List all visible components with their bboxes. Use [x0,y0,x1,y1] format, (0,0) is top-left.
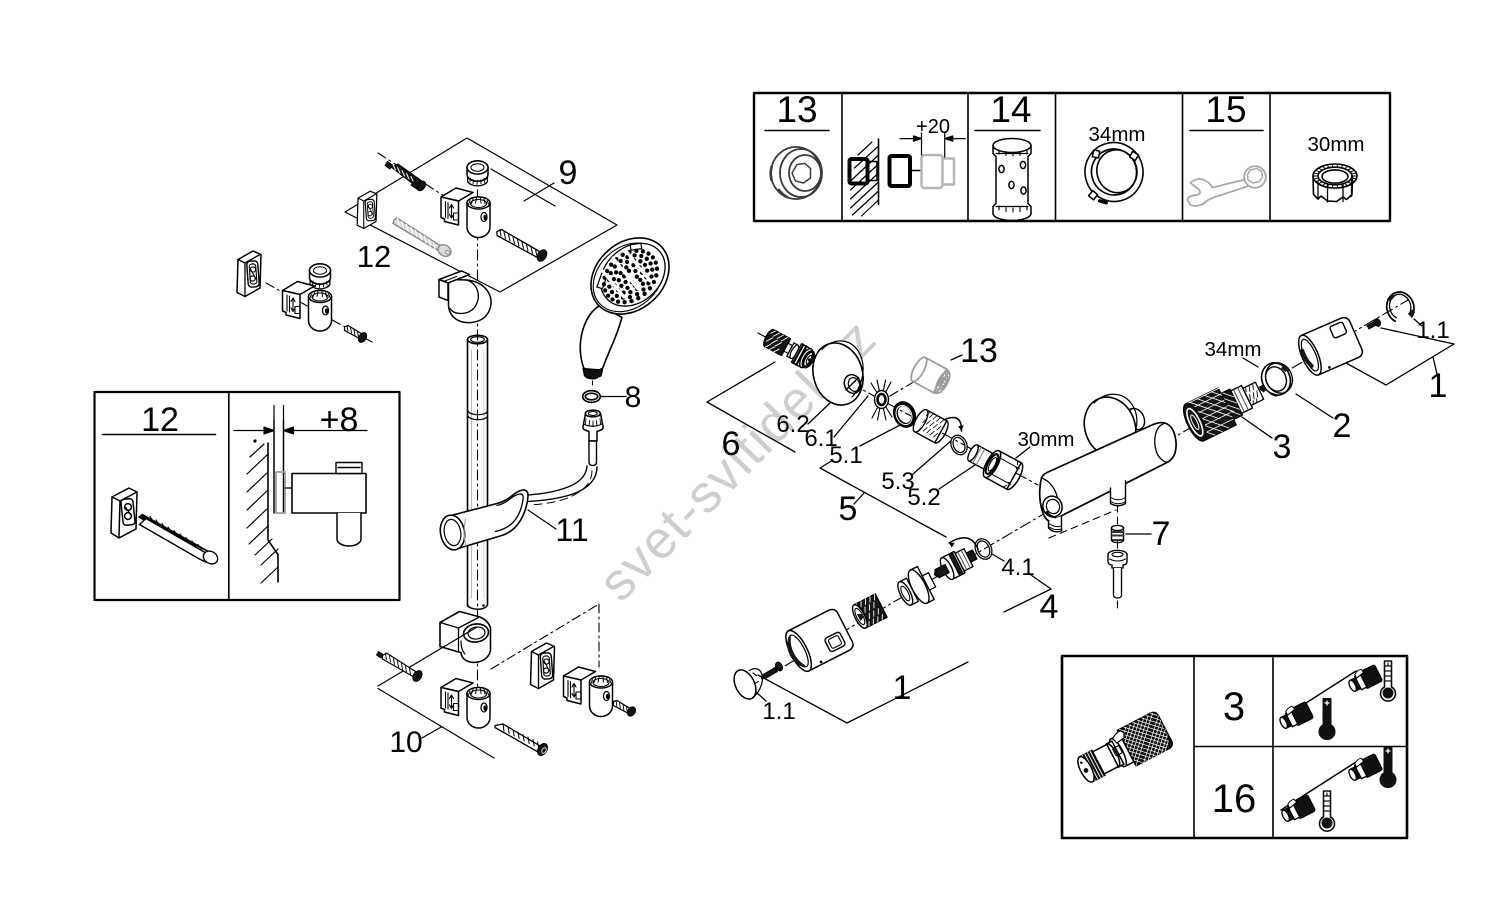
svg-text:13: 13 [776,89,817,130]
svg-text:15: 15 [1205,89,1246,130]
svg-text:+20: +20 [916,116,950,138]
svg-text:30mm: 30mm [1018,428,1075,451]
svg-text:5.2: 5.2 [907,484,940,511]
svg-text:11: 11 [555,512,588,548]
svg-text:4: 4 [1040,588,1059,626]
svg-text:+8: +8 [320,401,359,439]
svg-text:6: 6 [722,425,741,463]
svg-text:3: 3 [1273,428,1292,466]
svg-text:7: 7 [1152,515,1171,553]
svg-text:2: 2 [1333,407,1352,445]
svg-text:30mm: 30mm [1308,133,1365,156]
svg-text:4.1: 4.1 [1001,554,1034,581]
svg-text:14: 14 [990,89,1031,130]
svg-text:12: 12 [357,239,391,274]
svg-text:1.1: 1.1 [762,698,795,725]
svg-text:8: 8 [625,381,642,414]
svg-text:1: 1 [893,669,912,707]
svg-text:1.1: 1.1 [1416,317,1449,344]
svg-text:34mm: 34mm [1205,338,1262,361]
svg-text:3: 3 [1223,685,1245,729]
svg-text:1: 1 [1429,367,1448,405]
svg-text:12: 12 [141,401,179,439]
svg-text:13: 13 [960,332,998,370]
svg-text:9: 9 [559,154,578,192]
svg-text:5.1: 5.1 [829,442,862,469]
svg-text:10: 10 [389,726,422,759]
svg-text:16: 16 [1212,777,1257,821]
svg-text:5: 5 [839,490,858,528]
